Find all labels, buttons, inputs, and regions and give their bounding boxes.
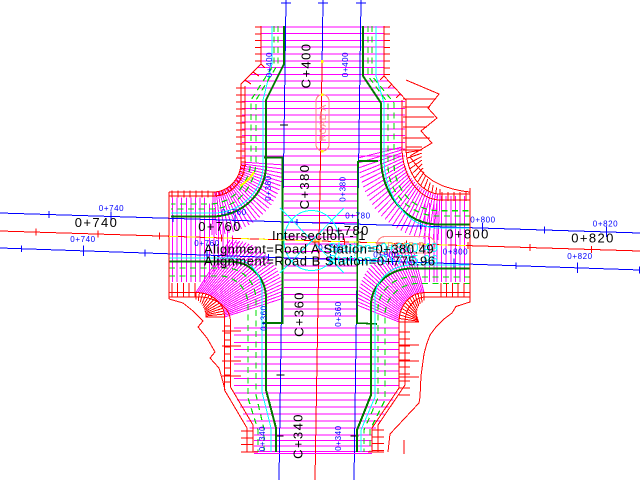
svg-text:0+360: 0+360: [334, 301, 343, 326]
svg-text:Alignment=Road B Station=: Alignment=Road B Station=0+775.96: [204, 254, 436, 269]
svg-text:0+800: 0+800: [446, 227, 490, 242]
svg-text:C+380: C+380: [297, 164, 312, 210]
svg-text:0+820: 0+820: [593, 219, 618, 228]
svg-text:0+800: 0+800: [470, 216, 495, 225]
svg-text:0+760: 0+760: [198, 219, 242, 234]
svg-text:0+780: 0+780: [345, 212, 370, 221]
svg-text:0+380: 0+380: [339, 176, 348, 201]
svg-text:0+820: 0+820: [567, 252, 592, 261]
svg-text:0+820: 0+820: [571, 231, 615, 246]
svg-text:0+340: 0+340: [258, 426, 267, 451]
svg-text:0+740: 0+740: [70, 235, 95, 244]
svg-text:0+340: 0+340: [334, 425, 343, 450]
svg-text:0+740: 0+740: [99, 204, 124, 213]
svg-text:ROAD A: ROAD A: [318, 104, 328, 141]
svg-text:0+740: 0+740: [75, 215, 119, 230]
svg-text:C+360: C+360: [292, 291, 307, 337]
svg-text:0+380: 0+380: [264, 175, 273, 200]
svg-text:0+400: 0+400: [341, 52, 350, 77]
svg-text:0+360: 0+360: [260, 305, 269, 330]
svg-text:0+760: 0+760: [221, 208, 246, 217]
svg-text:C+400: C+400: [299, 43, 314, 89]
svg-text:0+400: 0+400: [265, 52, 274, 77]
svg-text:0+800: 0+800: [443, 248, 468, 257]
svg-text:C+340: C+340: [291, 413, 306, 459]
